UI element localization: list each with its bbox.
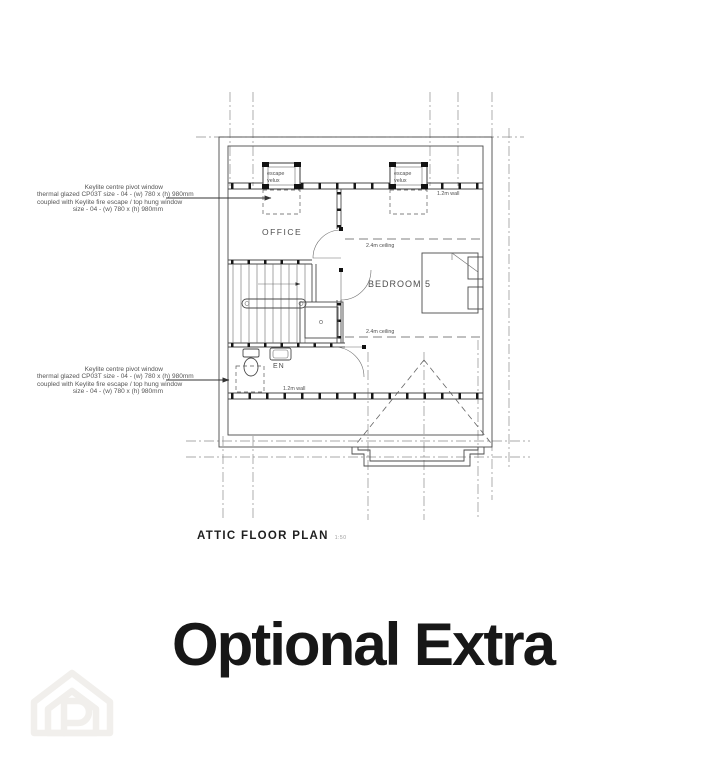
velux-right-label-line1: escape — [394, 171, 411, 177]
velux-left-label-line2: velux — [267, 178, 280, 184]
annotation-line: size - 04 - (w) 780 x (h) 980mm — [37, 388, 163, 395]
annotation-line: thermal glazed CP03T size - 04 - (w) 780… — [37, 373, 163, 380]
bottom-wall — [228, 393, 483, 399]
caption-optional-extra: Optional Extra — [0, 602, 726, 688]
annotation-line: Keylite centre pivot window — [37, 184, 163, 191]
room-label-office: OFFICE — [262, 227, 302, 237]
room-label-ensuite: EN — [273, 363, 285, 370]
velux-right-label-line2: velux — [394, 178, 407, 184]
annotation-line: size - 04 - (w) 780 x (h) 980mm — [37, 206, 163, 213]
bed — [422, 253, 483, 313]
annotation-line: thermal glazed CP03T size - 04 - (w) 780… — [37, 191, 163, 198]
room-label-bedroom5: BEDROOM 5 — [368, 279, 431, 289]
bay-window — [352, 447, 484, 466]
velux-window-left: escape velux — [262, 162, 301, 214]
plan-title-row: ATTIC FLOOR PLAN 1:50 — [197, 530, 346, 542]
staircase — [233, 264, 306, 343]
annotation-line: Keylite centre pivot window — [37, 366, 163, 373]
velux-window-bottom — [236, 366, 264, 392]
annotation-line: coupled with Keylite fire escape / top h… — [37, 381, 163, 388]
plan-scale: 1:50 — [335, 535, 347, 541]
internal-walls — [228, 189, 345, 347]
page: escape velux escape velux 1.2m wall — [0, 0, 726, 768]
velux-window-right: escape velux — [389, 162, 428, 214]
wall-label-top: 1.2m wall — [437, 191, 459, 197]
window-annotation-bottom: Keylite centre pivot window thermal glaz… — [37, 366, 163, 396]
ceiling-label-top: 2.4m ceiling — [366, 243, 394, 249]
plan-title: ATTIC FLOOR PLAN — [197, 530, 329, 542]
window-annotation-top: Keylite centre pivot window thermal glaz… — [37, 184, 163, 214]
wall-label-bottom: 1.2m wall — [283, 386, 305, 392]
ceiling-label-bottom: 2.4m ceiling — [366, 329, 394, 335]
velux-left-label-line1: escape — [267, 171, 284, 177]
annotation-leaders — [166, 198, 271, 380]
annotation-line: coupled with Keylite fire escape / top h… — [37, 199, 163, 206]
